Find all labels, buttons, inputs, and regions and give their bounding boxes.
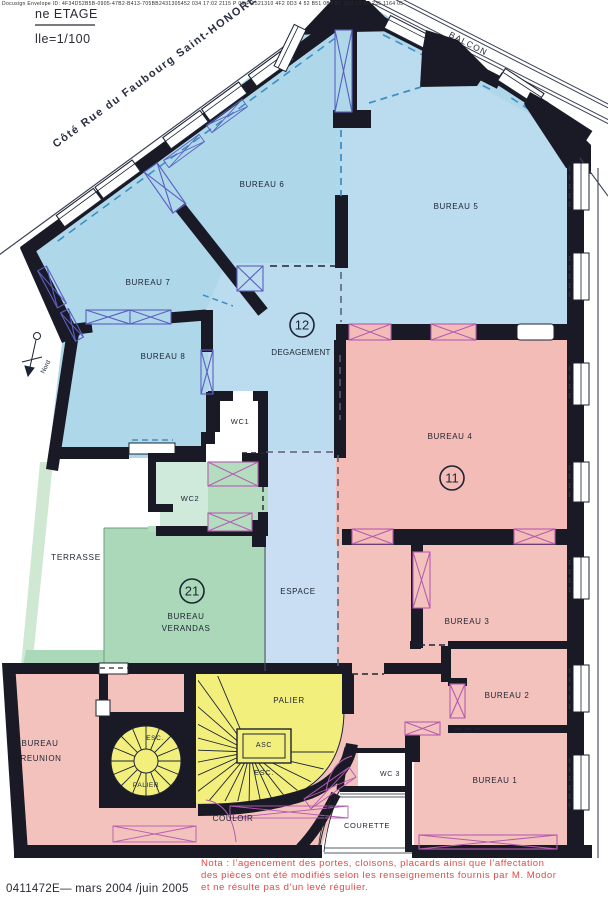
svg-text:BUREAU: BUREAU (168, 612, 205, 621)
svg-text:lle=1/100: lle=1/100 (35, 32, 91, 46)
svg-text:VERANDAS: VERANDAS (162, 624, 211, 633)
svg-text:11: 11 (445, 471, 459, 486)
svg-text:ASC: ASC (256, 742, 272, 749)
svg-text:PALIER: PALIER (273, 696, 304, 705)
svg-text:des pièces ont été modifiés se: des pièces ont été modifiés selon les re… (201, 870, 557, 881)
svg-text:BUREAU 5: BUREAU 5 (434, 202, 479, 211)
svg-text:ESPACE: ESPACE (280, 587, 315, 596)
svg-text:WC 3: WC 3 (380, 771, 400, 778)
svg-text:BUREAU 1: BUREAU 1 (473, 776, 518, 785)
svg-text:BUREAU 4: BUREAU 4 (428, 432, 473, 441)
svg-text:TERRASSE: TERRASSE (51, 553, 101, 562)
svg-text:12: 12 (295, 318, 309, 333)
svg-text:COURETTE: COURETTE (344, 821, 390, 830)
svg-text:BUREAU 3: BUREAU 3 (445, 617, 490, 626)
svg-text:BUREAU 8: BUREAU 8 (141, 352, 186, 361)
svg-text:REUNION: REUNION (20, 754, 61, 763)
svg-text:PALIER: PALIER (133, 782, 159, 789)
svg-text:WC1: WC1 (231, 417, 249, 426)
svg-text:COULOIR: COULOIR (213, 814, 254, 823)
svg-text:ESC.: ESC. (254, 768, 274, 777)
svg-text:ne ETAGE: ne ETAGE (35, 7, 98, 21)
svg-text:DEGAGEMENT: DEGAGEMENT (271, 348, 330, 357)
svg-text:BUREAU: BUREAU (22, 739, 59, 748)
svg-text:et ne résulte pas d’un levé r: et ne résulte pas d’un levé régulier. (201, 882, 368, 893)
svg-text:WC2: WC2 (181, 494, 199, 503)
svg-text:BUREAU 6: BUREAU 6 (240, 180, 285, 189)
svg-text:BUREAU 2: BUREAU 2 (485, 691, 530, 700)
svg-text:0411472E— mars 2004 /juin: 0411472E— mars 2004 /juin 2005 (6, 883, 189, 895)
svg-text:ESC.: ESC. (146, 735, 164, 742)
svg-text:Nota : l’agencement des portes: Nota : l’agencement des portes, cloisons… (201, 858, 544, 869)
svg-text:21: 21 (185, 584, 199, 599)
svg-text:BUREAU 7: BUREAU 7 (126, 278, 171, 287)
